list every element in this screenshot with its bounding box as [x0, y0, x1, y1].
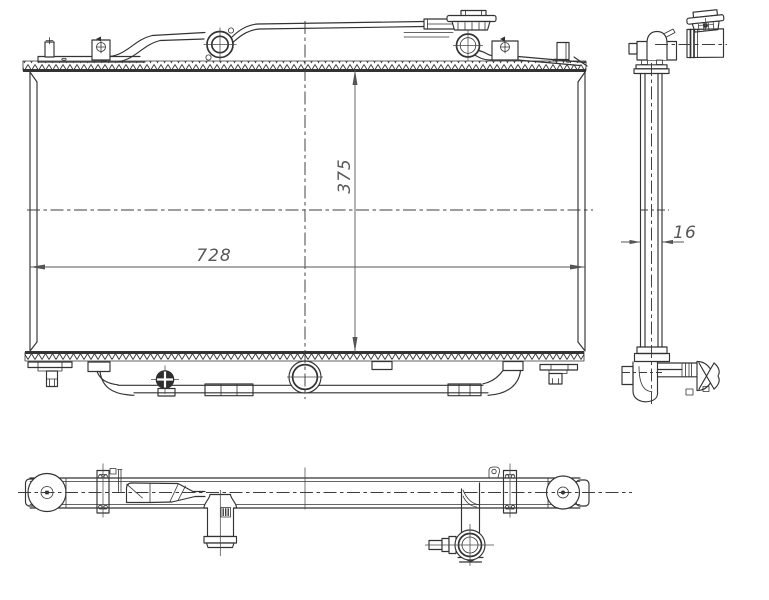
- pin-cap: [110, 469, 116, 475]
- bottom-bracket-left: [28, 362, 72, 387]
- filler-cap: [447, 11, 496, 31]
- side-outlet: [622, 362, 719, 402]
- mount-peg-left: [45, 38, 54, 58]
- outlet-fitting: [425, 483, 494, 566]
- dim-thickness: 16: [621, 223, 697, 244]
- overflow-hose: [232, 22, 453, 43]
- clamp-right: [489, 464, 517, 518]
- clamp-left: [97, 464, 122, 518]
- filler-neck: [453, 30, 483, 61]
- small-tab: [372, 362, 392, 370]
- mount-peg-right: [557, 43, 569, 60]
- side-core: [634, 63, 670, 404]
- filler-assembly: [424, 11, 587, 67]
- drawing-canvas: 728 375: [0, 0, 769, 600]
- grommet-ring: [204, 28, 237, 62]
- drain-cock: [151, 366, 179, 397]
- clip-bracket-left: [92, 37, 110, 61]
- outlet-box-left: [88, 362, 110, 372]
- clip-bracket-right: [492, 37, 518, 61]
- side-filler-cap: [629, 9, 727, 64]
- dim-width: 728: [30, 246, 585, 270]
- side-elbow: [629, 29, 677, 60]
- bottom-bracket-right: [540, 365, 578, 385]
- core-outline: [30, 70, 585, 351]
- dim-height: 375: [335, 70, 358, 352]
- dim-height-label: 375: [335, 158, 355, 193]
- crossbar: [26, 478, 590, 508]
- bottom-view: [18, 464, 632, 567]
- bottom-fittings: [28, 361, 578, 396]
- dim-width-label: 728: [196, 246, 231, 266]
- side-neck-cylinder: [687, 29, 724, 58]
- side-view: 16: [621, 9, 727, 404]
- dim-thickness-label: 16: [673, 223, 697, 243]
- radiator-technical-drawing: 728 375: [0, 0, 769, 600]
- mount-bracket-left: [38, 33, 205, 63]
- down-connector: [204, 490, 237, 556]
- front-view: 728 375: [23, 11, 593, 400]
- bottom-serration: [25, 353, 584, 362]
- outlet-box-right: [503, 362, 523, 371]
